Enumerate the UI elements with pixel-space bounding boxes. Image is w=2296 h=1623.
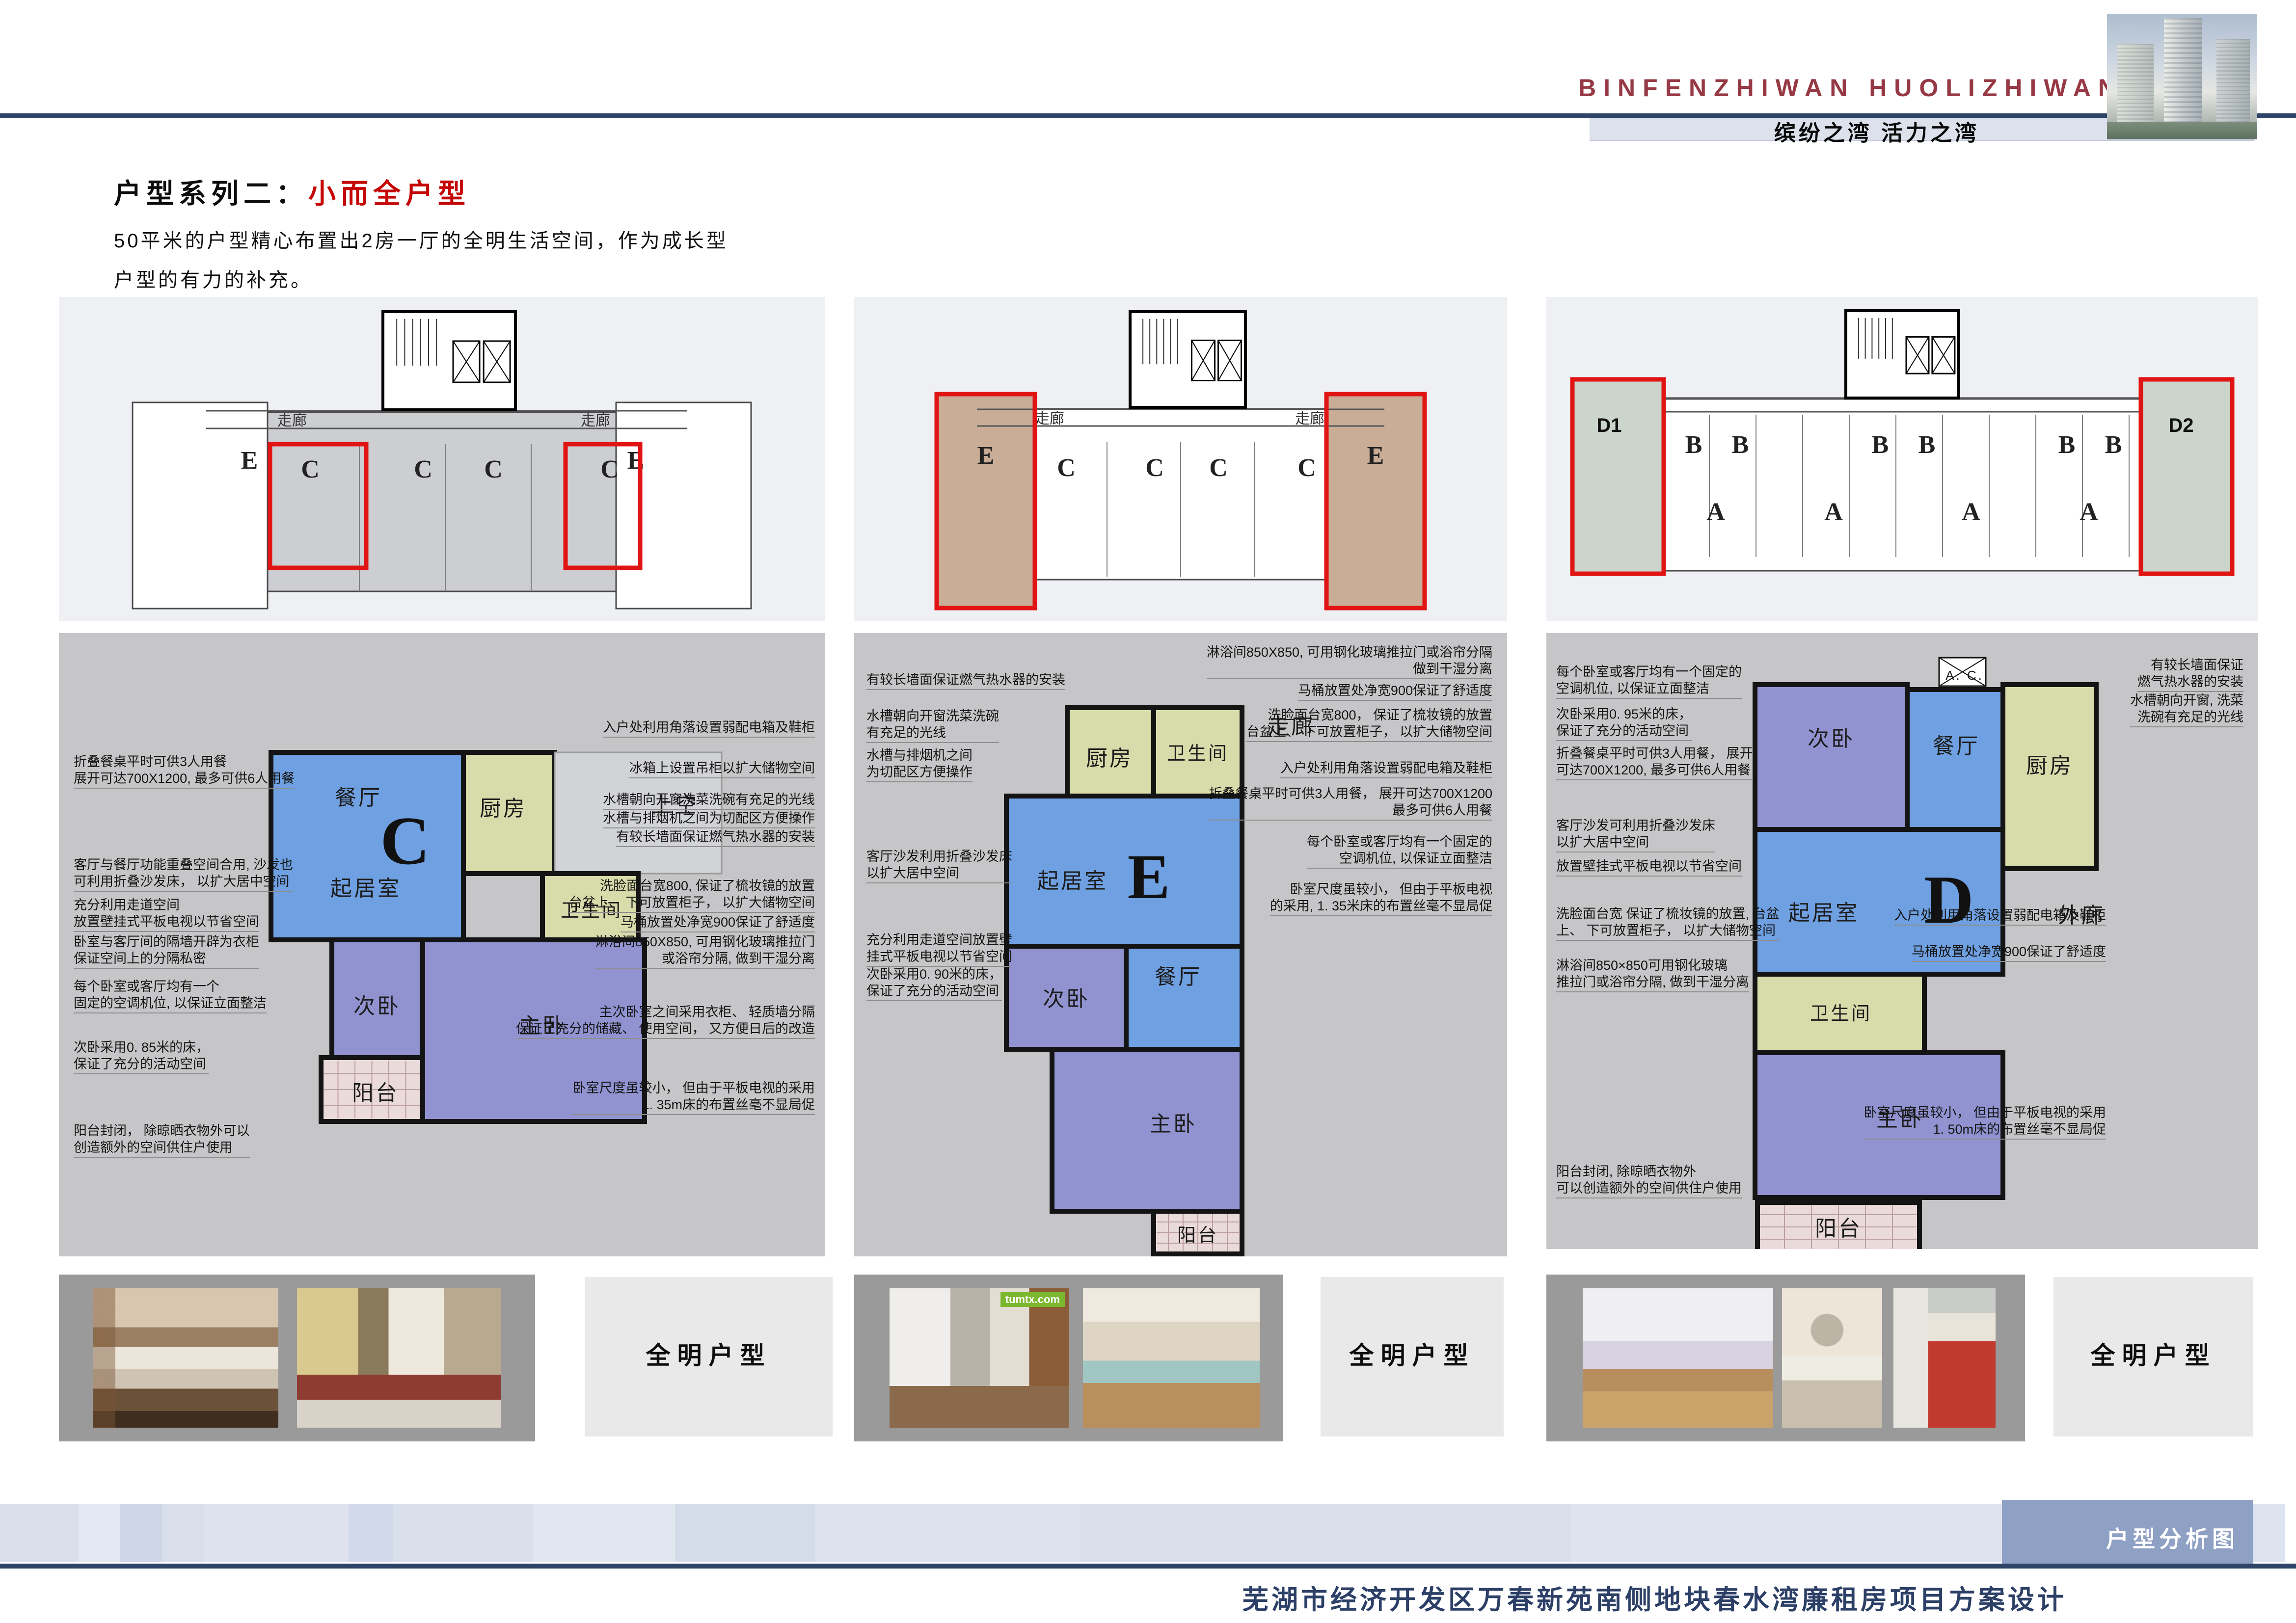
plan-annotation: 折叠餐桌平时可供3人用餐展开可达700X1200, 最多可供6人用餐 [74,753,295,789]
annotation-line: 保证了充分的储藏、 使用空间， 又方便日后的改造 [516,1020,815,1037]
room-label: 卫生间 [1167,744,1229,764]
room-label: 起居室 [1788,901,1859,925]
room-label: 起居室 [330,877,401,901]
annotation-line: 每个卧室或客厅均有一个固定的 [1556,664,1742,680]
unit-type-letter: C [301,455,320,483]
photo-band [59,1275,535,1441]
building-wing [1593,398,2212,571]
stair-core [1130,312,1245,407]
annotation-line: 冰箱上设置吊柜以扩大储物空间 [629,760,815,776]
annotation-line: 马桶放置处净宽900保证了舒适度 [621,914,815,931]
room-label: 餐厅 [1933,734,1980,758]
building-wing [616,402,751,609]
plan-annotation: 充分利用走道空间放置壁挂式平板电视以节省空间 [866,931,1012,967]
annotation-line: 洗脸面台宽800, 保证了梳妆镜的放置 [569,878,815,894]
annotation-line: 有较长墙面保证燃气热水器的安装 [616,828,815,845]
plan-annotation: 阳台封闭， 除晾晒衣物外可以创造额外的空间供住户使用 [74,1122,250,1158]
caption-label: 全明户型 [2053,1336,2253,1371]
footer-stripe-band [0,1504,2285,1562]
building-wing [2142,380,2231,573]
unit-type-letter: E [1367,442,1384,470]
annotation-line: 每个卧室或客厅均有一个固定的 [1307,833,1492,850]
annotation-line: 充分利用走道空间放置壁 [866,931,1012,948]
annotation-line: 水槽与排烟机之间 [866,747,972,764]
photo-band [1546,1275,2025,1441]
photo-band: tumtx.com [854,1275,1283,1441]
room-label: 次卧 [1808,727,1855,751]
annotation-line: 客厅与餐厅功能重叠空间合用, 沙发也 [74,856,293,873]
unit-type-letter: C [380,803,430,879]
unit-type-letter: B [1685,431,1702,459]
room-label: 阳台 [1815,1217,1862,1241]
footer-divider-line [0,1564,2296,1569]
building-key-plan-svg: BBBBBBAAAAD1D2 [1546,297,2258,621]
annotation-line: 保证了充分的活动空间 [1556,722,1692,739]
annotation-line: 创造额外的空间供住户使用 [74,1139,250,1156]
corridor-label: 走廊 [1035,411,1064,427]
plan-annotation: 客厅沙发可利用折叠沙发床以扩大居中空间 [1556,817,1715,852]
annotation-line: 主次卧室之间采用衣柜、 轻质墙分隔 [516,1004,815,1020]
plan-annotation: 水槽与排烟机之间为切配区方便操作 [603,810,815,828]
plan-annotation: 入户处利用角落设置弱配电箱及鞋柜 [1894,907,2106,926]
plan-annotation: 淋浴间850X850, 可用钢化玻璃推拉门或浴帘分隔, 做到干湿分离 [595,933,815,969]
annotation-line: 客厅沙发可利用折叠沙发床 [1556,817,1715,834]
plan-annotation: 客厅沙发利用折叠沙发床以扩大居中空间 [866,848,1012,883]
unit-type-letter: B [2105,431,2122,459]
unit-type-letter: C [1145,454,1164,482]
room-label: 阳台 [1177,1225,1218,1246]
plan-annotation: 淋浴间850X850, 可用钢化玻璃推拉门或浴帘分隔做到干湿分离 [1207,644,1492,679]
building-key-plan: BBBBBBAAAAD1D2 [1546,297,2258,621]
annotation-line: 台盆上、 下可放置柜子， 以扩大储物空间 [1246,723,1492,740]
annotation-line: 洗脸面台宽 保证了梳妆镜的放置, 台盆 [1556,905,1780,922]
annotation-line: 上、 下可放置柜子， 以扩大储物空间 [1556,922,1780,939]
hallway-living-photo [1583,1288,1773,1428]
annotation-line: 入户处利用角落设置弱配电箱及鞋柜 [603,719,815,736]
building-key-plan-svg: ECCCCE走廊走廊 [59,297,825,621]
annotation-line: 可达700X1200, 最多可供6人用餐 [1556,762,1753,778]
building-wing [1327,395,1424,607]
room-label: 厨房 [2026,754,2073,778]
page-category-tab: 户型分析图 [2002,1500,2253,1569]
stair-core [1846,311,1959,398]
annotation-line: 阳台封闭, 除晾晒衣物外 [1556,1163,1742,1180]
plan-annotation: 洗脸面台宽800, 保证了梳妆镜的放置台盆上、 下可放置柜子， 以扩大储物空间 [569,878,815,913]
plan-annotation: 有较长墙面保证燃气热水器的安装 [616,828,815,847]
annotation-line: 卧室尺度虽较小， 但由于平板电视的采用 [572,1080,815,1096]
annotation-line: 次卧采用0. 95米的床， [1556,706,1692,722]
caption-box: 全明户型 [572,1277,833,1437]
room-label: 卫生间 [1810,1004,1872,1024]
annotation-line: 台盆上、 下可放置柜子， 以扩大储物空间 [569,894,815,911]
plan-annotation: 水槽朝向开窗, 洗菜洗碗有充足的光线 [2130,692,2243,727]
annotation-line: 有充足的光线 [866,724,999,741]
unit-type-letter: B [1918,431,1936,459]
annotation-line: 马桶放置处净宽900保证了舒适度 [1912,943,2106,960]
plan-annotation: 每个卧室或客厅均有一个固定的空调机位, 以保证立面整洁 [1556,664,1742,699]
annotation-line: 保证了充分的活动空间 [866,983,1002,999]
annotation-line: 展开可达700X1200, 最多可供6人用餐 [74,770,295,787]
unit-type-letter: C [1057,454,1076,482]
annotation-line: 挂式平板电视以节省空间 [866,948,1012,965]
annotation-line: 淋浴间850×850可用钢化玻璃 [1556,957,1749,974]
corridor-label: 走廊 [581,413,610,429]
corridor-label: 走廊 [1295,411,1324,427]
room-label: 次卧 [1043,987,1090,1011]
annotation-line: 最多可供6人用餐 [1209,802,1492,819]
unit-type-letter: C [484,455,503,483]
plan-annotation: 卧室尺度虽较小， 但由于平板电视的采用, 1. 35米床的布置丝毫不显局促 [1270,881,1492,916]
room-label: 阳台 [352,1081,399,1105]
unit-type-letter: D [1924,862,1973,938]
unit-type-letter: B [2058,431,2076,459]
plan-annotation: 水槽与排烟机之间为切配区方便操作 [866,747,972,782]
plan-annotation: 有较长墙面保证燃气热水器的安装 [2137,657,2243,692]
caption-label: 全明户型 [1321,1336,1504,1371]
plan-annotation: 充分利用走道空间放置壁挂式平板电视以节省空间 [74,897,259,932]
annotation-line: 空调机位, 以保证立面整洁 [1556,680,1742,697]
plan-annotation: 卧室尺度虽较小， 但由于平板电视的采用1. 35m床的布置丝毫不显局促 [572,1080,815,1115]
plan-annotation: 水槽朝向开窗洗菜洗碗有充足的光线 [866,708,999,743]
annotation-line: 为切配区方便操作 [866,764,972,780]
room-label: 餐厅 [1155,965,1202,989]
plan-annotation: 客厅与餐厅功能重叠空间合用, 沙发也可利用折叠沙发床， 以扩大居中空间 [74,856,293,892]
annotation-line: 以扩大居中空间 [866,865,1012,881]
annotation-line: 空调机位, 以保证立面整洁 [1307,850,1492,867]
plan-annotation: 淋浴间850×850可用钢化玻璃推拉门或浴帘分隔, 做到干湿分离 [1556,957,1749,992]
annotation-line: 淋浴间850X850, 可用钢化玻璃推拉门 [595,933,815,950]
unit-type-letter: A [1962,498,1980,526]
unit-type-letter: A [1706,498,1725,526]
unit-type-letter: D2 [2168,415,2193,436]
presentation-board: BINFENZHIWAN HUOLIZHIWAN 缤纷之湾 活力之湾 户型系列二… [0,0,2296,1623]
plan-annotation: 洗脸面台宽 保证了梳妆镜的放置, 台盆上、 下可放置柜子， 以扩大储物空间 [1556,905,1780,941]
annotation-line: 以扩大居中空间 [1556,834,1715,851]
caption-box: 全明户型 [1308,1277,1504,1437]
unit-type-letter: E [241,447,258,475]
unit-type-letter: E [977,442,995,470]
unit-plan-panel: E厨房卫生间起居室餐厅次卧主卧阳台走廊有较长墙面保证燃气热水器的安装水槽朝向开窗… [854,633,1507,1256]
annotation-line: 水槽朝向开窗, 洗菜 [2130,692,2243,709]
annotation-line: 保证了充分的活动空间 [74,1056,209,1072]
annotation-line: 或浴帘分隔, 做到干湿分离 [595,950,815,967]
bathroom-photo [1782,1288,1882,1428]
project-title: 芜湖市经济开发区万春新苑南侧地块春水湾廉租房项目方案设计 [1242,1578,2067,1617]
annotation-line: 洗脸面台宽800， 保证了梳妆镜的放置 [1246,707,1492,723]
annotation-line: 洗碗有充足的光线 [2130,709,2243,725]
plan-annotation: 有较长墙面保证燃气热水器的安装 [866,671,1065,690]
plan-annotation: 卧室与客厅间的隔墙开辟为衣柜保证空间上的分隔私密 [74,933,259,969]
annotation-line: 水槽朝向开窗洗菜洗碗有充足的光线 [603,791,815,808]
room-label: A. C. [1945,668,1984,683]
unit-column-e: ECCCCE走廊走廊E厨房卫生间起居室餐厅次卧主卧阳台走廊有较长墙面保证燃气热水… [854,0,1507,1623]
annotation-line: 放置壁挂式平板电视以节省空间 [1556,858,1742,875]
unit-type-letter: C [1297,454,1316,482]
building-key-plan-svg: ECCCCE走廊走廊 [854,297,1507,621]
unit-type-letter: C [414,455,432,483]
photo-strip: 全明户型 [59,1275,825,1441]
room-label: 厨房 [480,797,527,821]
annotation-line: 阳台封闭， 除晾晒衣物外可以 [74,1122,250,1139]
annotation-line: 固定的空调机位, 以保证立面整洁 [74,995,267,1011]
annotation-line: 折叠餐桌平时可供3人用餐， 展开 [1556,745,1753,762]
unit-type-letter: B [1732,431,1749,459]
plan-annotation: 次卧采用0. 85米的床，保证了充分的活动空间 [74,1039,209,1074]
unit-plan-panel: C餐厅起居室厨房上空卫生间次卧主卧阳台折叠餐桌平时可供3人用餐展开可达700X1… [59,633,825,1256]
plan-annotation: 入户处利用角落设置弱配电箱及鞋柜 [1280,760,1492,778]
plan-annotation: 马桶放置处净宽900保证了舒适度 [1912,943,2106,962]
room-label: 餐厅 [335,786,382,810]
caption-label: 全明户型 [585,1336,833,1371]
building-wing [1573,380,1663,573]
building-key-plan: ECCCCE走廊走廊 [854,297,1507,621]
unit-type-letter: C [600,455,619,483]
plan-annotation: 入户处利用角落设置弱配电箱及鞋柜 [603,719,815,738]
bedroom-hall-photo [297,1288,501,1428]
annotation-line: 每个卧室或客厅均有一个 [74,978,267,995]
plan-annotation: 水槽朝向开窗洗菜洗碗有充足的光线 [603,791,815,810]
master-bedroom [1052,1049,1242,1211]
room-label: 厨房 [1086,746,1133,771]
living-room-photo: tumtx.com [890,1288,1069,1428]
annotation-line: 马桶放置处净宽900保证了舒适度 [1298,682,1492,699]
bedroom-photo [93,1288,278,1428]
plan-annotation: 每个卧室或客厅均有一个固定的空调机位, 以保证立面整洁 [74,978,267,1013]
unit-type-letter: B [1872,431,1889,459]
annotation-line: 卧室尺度虽较小， 但由于平板电视的采用 [1864,1104,2106,1121]
annotation-line: 水槽与排烟机之间为切配区方便操作 [603,810,815,826]
dining-area [1126,946,1242,1049]
annotation-line: 折叠餐桌平时可供3人用餐， 展开可达700X1200 [1209,785,1492,802]
annotation-line: 1. 50m床的布置丝毫不显局促 [1864,1121,2106,1138]
building-wing [133,402,268,609]
annotation-line: 客厅沙发利用折叠沙发床 [866,848,1012,865]
photo-strip: 全明户型 [1546,1275,2258,1441]
room-label: 主卧 [1150,1112,1197,1136]
second-bedroom [1755,685,1907,829]
annotation-line: 可利用折叠沙发床， 以扩大居中空间 [74,873,293,890]
photo-watermark: tumtx.com [1000,1292,1065,1307]
annotation-line: 充分利用走道空间 [74,897,259,913]
dining-living-room [271,752,463,940]
plan-annotation: 洗脸面台宽800， 保证了梳妆镜的放置台盆上、 下可放置柜子， 以扩大储物空间 [1246,707,1492,742]
unit-type-letter: E [1128,842,1170,912]
unit-column-d: BBBBBBAAAAD1D2D次卧餐厅起居室卫生间主卧阳台厨房外廊A. C.每个… [1546,0,2258,1623]
corridor-label: 走廊 [277,413,307,429]
red-kitchen-photo [1893,1288,1996,1428]
dining-area [1907,690,2003,829]
annotation-line: 的采用, 1. 35米床的布置丝毫不显局促 [1270,898,1492,914]
annotation-line: 折叠餐桌平时可供3人用餐 [74,753,295,770]
annotation-line: 水槽朝向开窗洗菜洗碗 [866,708,999,724]
plan-annotation: 折叠餐桌平时可供3人用餐， 展开可达700X1200最多可供6人用餐 [1209,785,1492,821]
plan-annotation: 折叠餐桌平时可供3人用餐， 展开可达700X1200, 最多可供6人用餐 [1556,745,1753,780]
annotation-line: 保证空间上的分隔私密 [74,950,259,967]
unit-column-c: ECCCCE走廊走廊C餐厅起居室厨房上空卫生间次卧主卧阳台折叠餐桌平时可供3人用… [59,0,825,1623]
annotation-line: 卧室与客厅间的隔墙开辟为衣柜 [74,933,259,950]
room-label: 次卧 [353,994,401,1018]
unit-type-letter: D1 [1596,415,1621,436]
annotation-line: 入户处利用角落设置弱配电箱及鞋柜 [1894,907,2106,924]
annotation-line: 次卧采用0. 85米的床， [74,1039,209,1056]
building-key-plan: ECCCCE走廊走廊 [59,297,825,621]
annotation-line: 入户处利用角落设置弱配电箱及鞋柜 [1280,760,1492,776]
annotation-line: 可以创造额外的空间供住户使用 [1556,1180,1742,1197]
annotation-line: 有较长墙面保证 [2137,657,2243,673]
plan-annotation: 每个卧室或客厅均有一个固定的空调机位, 以保证立面整洁 [1307,833,1492,869]
photo-strip: tumtx.com全明户型 [854,1275,1507,1441]
plan-annotation: 马桶放置处净宽900保证了舒适度 [1298,682,1492,701]
annotation-line: 放置壁挂式平板电视以节省空间 [74,913,259,930]
annotation-line: 有较长墙面保证燃气热水器的安装 [866,671,1065,688]
annotation-line: 做到干湿分离 [1207,661,1492,677]
plan-annotation: 卧室尺度虽较小， 但由于平板电视的采用1. 50m床的布置丝毫不显局促 [1864,1104,2106,1140]
living-room-tv-photo [1083,1288,1260,1428]
building-wing [938,395,1034,607]
annotation-line: 次卧采用0. 90米的床， [866,966,1002,983]
plan-annotation: 冰箱上设置吊柜以扩大储物空间 [629,760,815,778]
annotation-line: 燃气热水器的安装 [2137,673,2243,690]
annotation-line: 卧室尺度虽较小， 但由于平板电视 [1270,881,1492,898]
plan-annotation: 阳台封闭, 除晾晒衣物外可以创造额外的空间供住户使用 [1556,1163,1742,1198]
annotation-line: 淋浴间850X850, 可用钢化玻璃推拉门或浴帘分隔 [1207,644,1492,661]
plan-annotation: 马桶放置处净宽900保证了舒适度 [621,914,815,932]
unit-type-letter: A [1824,498,1843,526]
room-label: 起居室 [1037,869,1108,893]
unit-plan-panel: D次卧餐厅起居室卫生间主卧阳台厨房外廊A. C.每个卧室或客厅均有一个固定的空调… [1546,633,2258,1249]
stair-core [383,312,515,410]
unit-type-letter: A [2080,498,2098,526]
annotation-line: 推拉门或浴帘分隔, 做到干湿分离 [1556,974,1749,990]
plan-annotation: 次卧采用0. 95米的床，保证了充分的活动空间 [1556,706,1692,741]
caption-box: 全明户型 [2041,1277,2253,1437]
page-category-label: 户型分析图 [2002,1521,2239,1554]
plan-annotation: 放置壁挂式平板电视以节省空间 [1556,858,1742,877]
plan-annotation: 主次卧室之间采用衣柜、 轻质墙分隔保证了充分的储藏、 使用空间， 又方便日后的改… [516,1004,815,1039]
unit-type-letter: C [1209,454,1228,482]
annotation-line: 1. 35m床的布置丝毫不显局促 [572,1096,815,1113]
plan-annotation: 次卧采用0. 90米的床，保证了充分的活动空间 [866,966,1002,1001]
